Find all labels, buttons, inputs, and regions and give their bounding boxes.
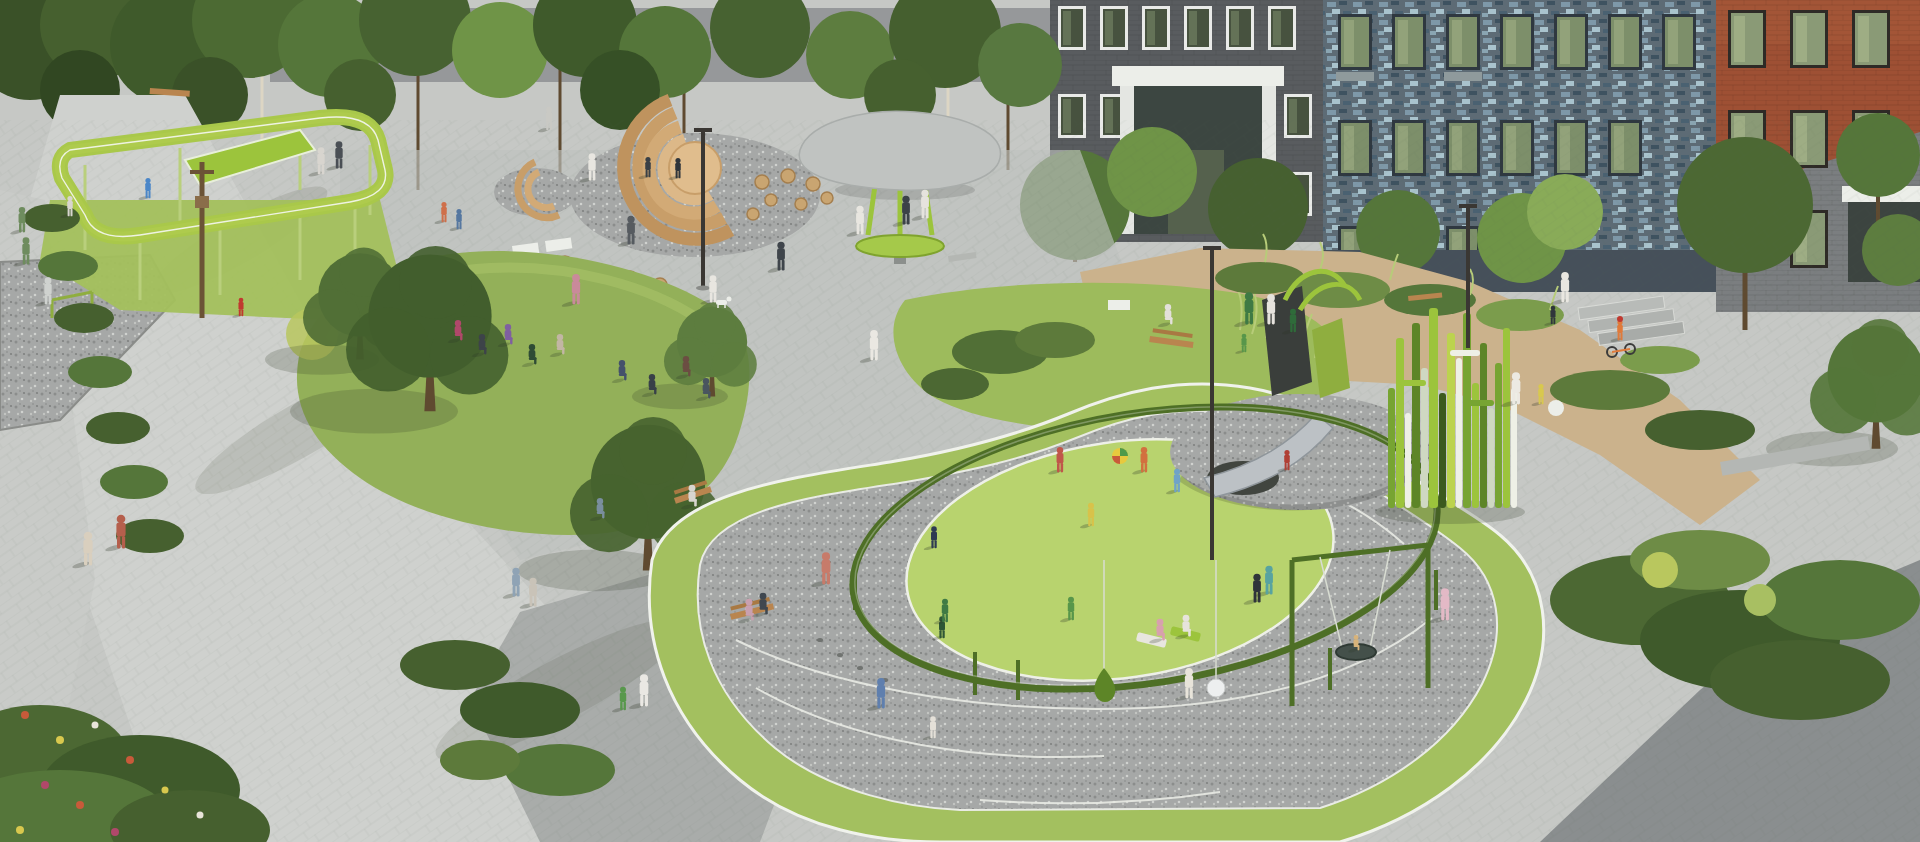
courtyard-rendering: Aerial architectural rendering of a resi… — [0, 0, 1920, 842]
rendering-canvas — [0, 0, 1920, 842]
beach-ball — [1112, 448, 1128, 464]
mushroom-canopy — [799, 111, 1000, 190]
play-table — [1108, 300, 1130, 310]
sphere-swing — [1207, 679, 1225, 697]
round-table — [856, 235, 944, 257]
red-helmet — [1617, 316, 1623, 322]
play-stool — [1548, 400, 1564, 416]
